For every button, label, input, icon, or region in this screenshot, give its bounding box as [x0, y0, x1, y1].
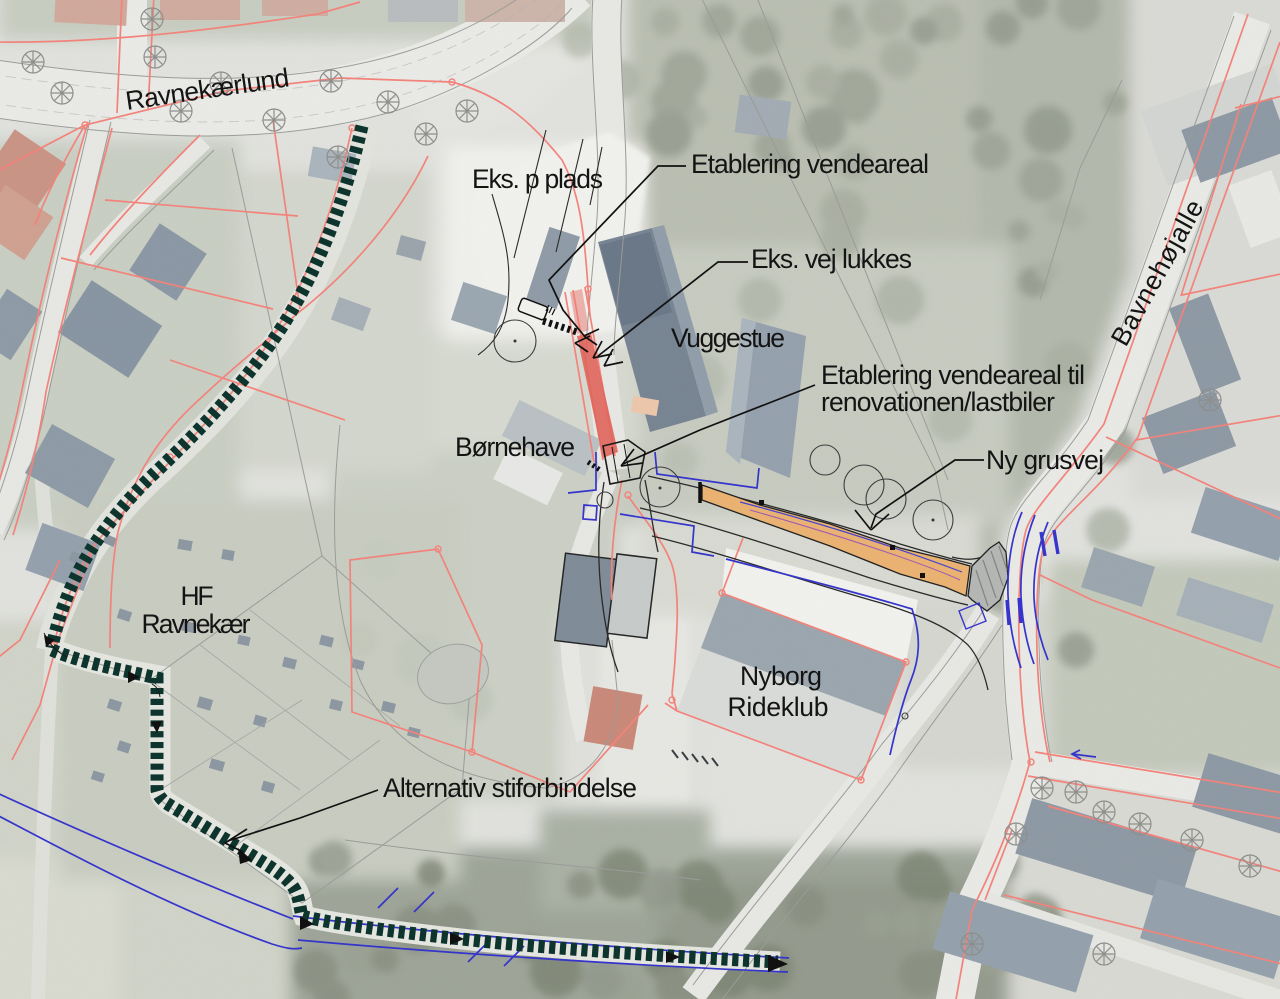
svg-text:Eks. p plads: Eks. p plads — [472, 164, 603, 194]
svg-text:Nyborg: Nyborg — [740, 661, 822, 691]
svg-text:Etablering vendeareal til: Etablering vendeareal til — [821, 360, 1085, 390]
svg-text:Rideklub: Rideklub — [728, 692, 829, 722]
svg-text:Ravnekær: Ravnekær — [142, 609, 251, 639]
svg-text:Vuggestue: Vuggestue — [671, 323, 785, 353]
svg-text:Børnehave: Børnehave — [455, 432, 575, 462]
svg-text:Etablering vendeareal: Etablering vendeareal — [691, 149, 929, 179]
svg-text:Ny grusvej: Ny grusvej — [986, 445, 1104, 475]
svg-text:Eks. vej lukkes: Eks. vej lukkes — [751, 244, 912, 274]
svg-text:HF: HF — [181, 581, 214, 611]
svg-text:Alternativ stiforbindelse: Alternativ stiforbindelse — [383, 773, 637, 803]
svg-text:renovationen/lastbiler: renovationen/lastbiler — [821, 387, 1055, 417]
